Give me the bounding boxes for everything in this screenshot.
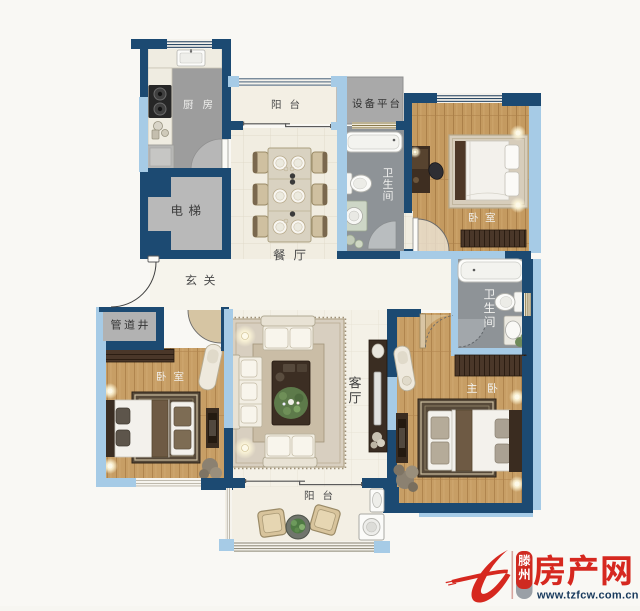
svg-text:www.tzfcw.com.cn: www.tzfcw.com.cn bbox=[536, 590, 639, 602]
